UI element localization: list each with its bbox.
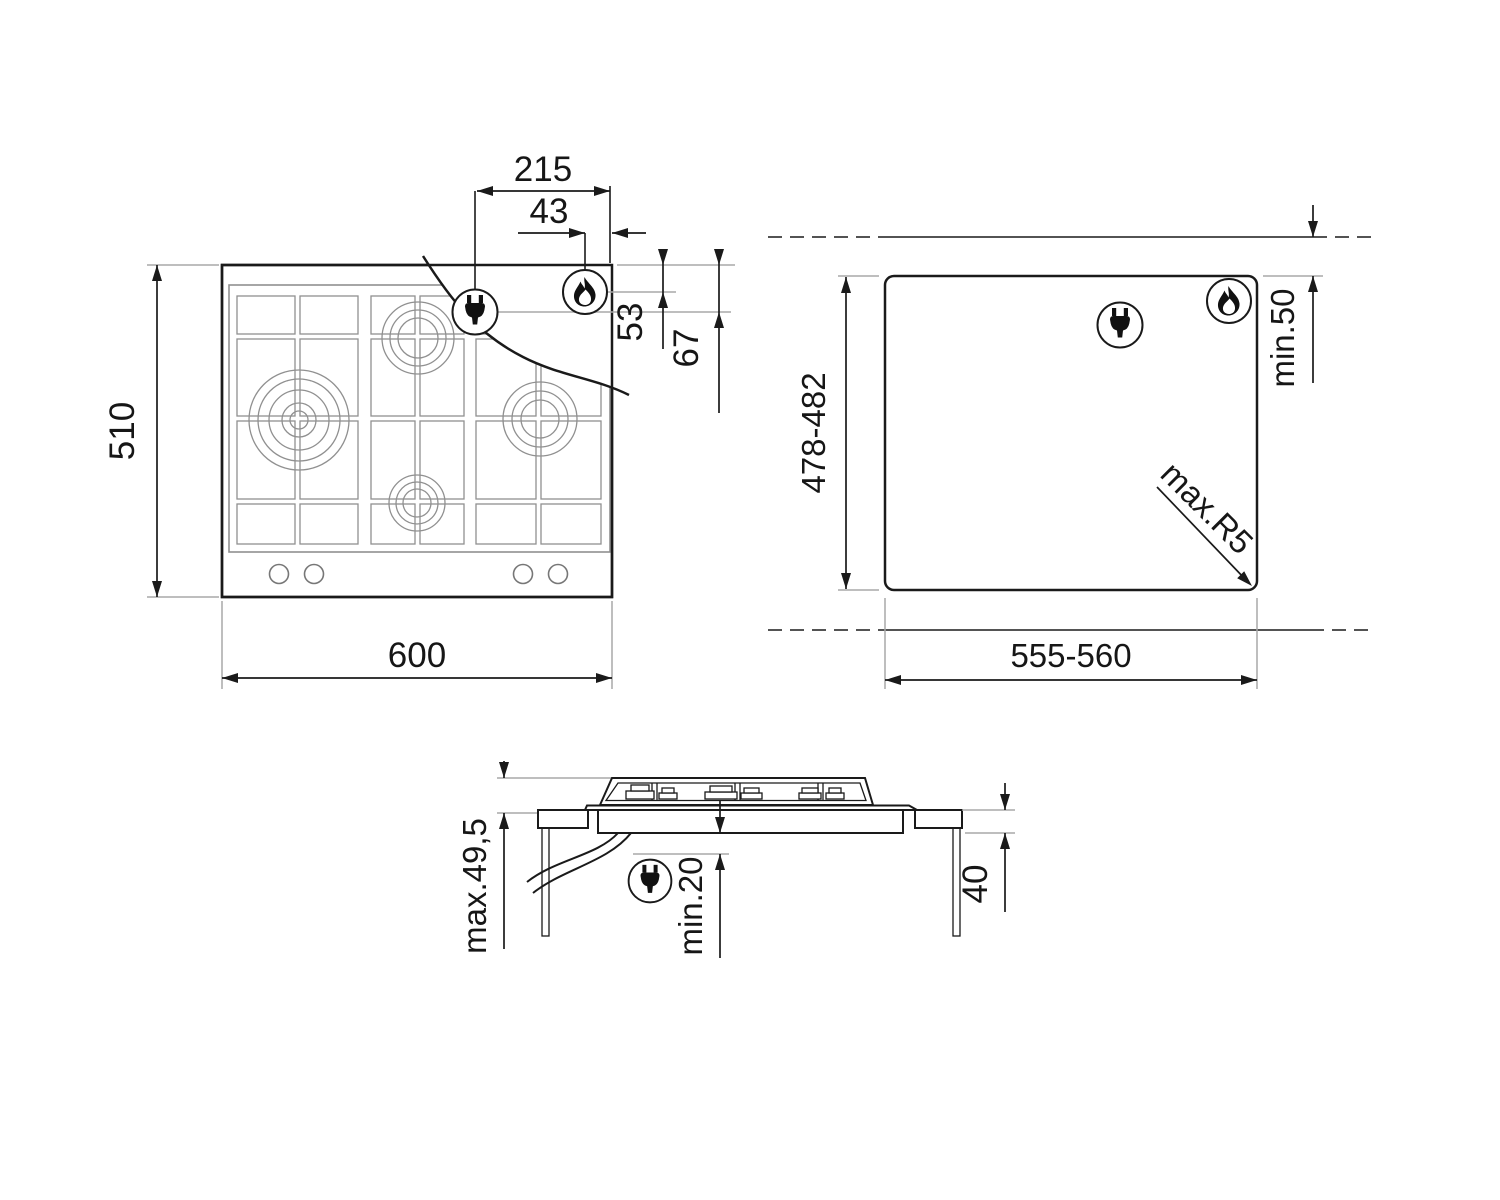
- dim-label-478-482: 478-482: [795, 372, 832, 493]
- technical-drawing-page: 215 43 53 67 510: [0, 0, 1500, 1200]
- dim-label-215: 215: [514, 150, 572, 189]
- worktop-block-right: [915, 810, 962, 828]
- dim-cutout-depth: 478-482: [795, 277, 851, 589]
- dim-rear-clearance: min.50: [1264, 205, 1318, 388]
- installation-diagram: 215 43 53 67 510: [0, 0, 1500, 1200]
- dim-overall-height: max.49,5: [456, 761, 509, 954]
- dim-label-53: 53: [611, 303, 650, 342]
- dim-label-555-560: 555-560: [1010, 637, 1131, 674]
- dim-hob-depth: 510: [103, 265, 162, 597]
- side-section-view: max.49,5 min.20 40: [456, 761, 1015, 958]
- dim-cutout-width: 555-560: [885, 637, 1257, 685]
- cutout-rect: [885, 276, 1257, 590]
- dim-label-510: 510: [103, 402, 142, 460]
- dim-label-max495: max.49,5: [456, 818, 493, 954]
- dim-flame-from-right: 43: [518, 192, 646, 238]
- worktop-block-left: [538, 810, 588, 828]
- plug-icon: [1098, 303, 1143, 348]
- hob-top-view: 215 43 53 67 510: [103, 150, 735, 689]
- dim-label-600: 600: [388, 636, 446, 675]
- dim-label-43: 43: [530, 192, 569, 231]
- plug-icon: [453, 290, 498, 335]
- dim-hob-width: 600: [222, 636, 612, 683]
- dim-label-min20: min.20: [672, 856, 709, 955]
- hob-body-profile: [598, 810, 903, 833]
- dim-label-40: 40: [956, 865, 995, 904]
- flame-icon: [563, 270, 607, 314]
- dim-worktop-thickness: 40: [956, 783, 1010, 912]
- worktop-cutout-view: 478-482 555-560 min.50 max.R5: [768, 205, 1372, 689]
- dim-label-min50: min.50: [1264, 288, 1301, 387]
- dim-label-67: 67: [667, 329, 706, 368]
- dim-plug-from-right: 215: [477, 150, 610, 196]
- flame-icon: [1207, 279, 1251, 323]
- plug-icon: [629, 860, 672, 903]
- dim-plug-from-top: 67: [667, 249, 724, 413]
